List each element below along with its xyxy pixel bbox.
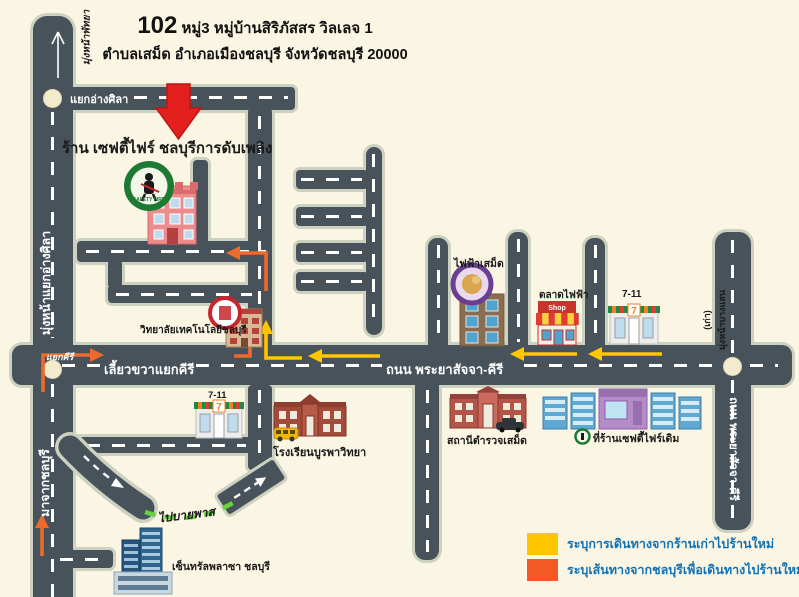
central-plaza-label: เซ็นทรัลพลาซา ชลบุรี (172, 558, 270, 575)
old-shop-label: ที่ร้านเซฟตี้ไฟร์เดิม (593, 430, 679, 447)
legend-swatch-orange (527, 559, 558, 581)
map-title: 102 หมู่3 หมู่บ้านสิริภัสสร วิลเลจ 1 ตำบ… (55, 12, 455, 66)
address-number: 102 (137, 12, 177, 39)
bangsaen-dest-label: มุ่งหน้าบางแสน (715, 275, 729, 365)
khiri-turn-label: เลี้ยวขวาแยกคีรี (104, 359, 194, 380)
left-road-up-label: มุ่งหน้าแยกอ่างศิลา (36, 198, 56, 368)
legend-swatch-yellow (527, 533, 558, 555)
bangsaen-dest-note: (เก่า) (700, 275, 714, 365)
khiri-junction-label: แยกคีรี (46, 350, 73, 364)
legend: ระบุการเดินทางจากร้านเก่าไปร้านใหม่ ระบุ… (527, 533, 799, 585)
address-line2: ตำบลเสม็ด อำเภอเมืองชลบุรี จังหวัดชลบุรี… (55, 43, 455, 66)
right-road-label: ถนน พระยาสัจจา-คีรี (724, 364, 742, 534)
seven-eleven-north-label: 7-11 (622, 289, 641, 300)
electric-market-label: ตลาดไฟฟ้า (539, 288, 589, 303)
pattaya-dest-label: มุ่งหน้าพัทยา (80, 0, 95, 78)
shop-name-label: ร้าน เซฟตี้ไฟร์ ชลบุรีการดับเพลิง (62, 136, 272, 160)
college-label: วิทยาลัยเทคโนโลยีชลบุรี (140, 323, 247, 338)
samet-electricity-label: ไฟฟ้าเสม็ด (454, 255, 504, 272)
labels-layer: 102 หมู่3 หมู่บ้านสิริภัสสร วิลเลจ 1 ตำบ… (0, 0, 799, 597)
legend-label-orange: ระบุเส้นทางจากชลบุรีเพื่อเดินทางไปร้านให… (567, 560, 799, 580)
address-line1: 102 หมู่3 หมู่บ้านสิริภัสสร วิลเลจ 1 (55, 12, 455, 40)
legend-item: ระบุการเดินทางจากร้านเก่าไปร้านใหม่ (527, 533, 799, 555)
angsila-junction-label: แยกอ่างศิลา (70, 90, 128, 108)
police-station-label: สถานีตำรวจเสม็ด (447, 432, 527, 449)
school-label: โรงเรียนบูรพาวิทยา (273, 443, 366, 461)
legend-label-yellow: ระบุการเดินทางจากร้านเก่าไปร้านใหม่ (567, 534, 774, 554)
left-road-down-label: มาจากชลบุรี (35, 413, 55, 553)
legend-item: ระบุเส้นทางจากชลบุรีเพื่อเดินทางไปร้านให… (527, 559, 799, 581)
seven-eleven-south-label: 7-11 (208, 390, 227, 401)
main-road-label: ถนน พระยาสัจจา-คีรี (386, 359, 503, 380)
chonburi-direction-map: SAFETY FIRE Shop (0, 0, 799, 597)
bypass-label: ไปบายพาส (157, 503, 216, 529)
